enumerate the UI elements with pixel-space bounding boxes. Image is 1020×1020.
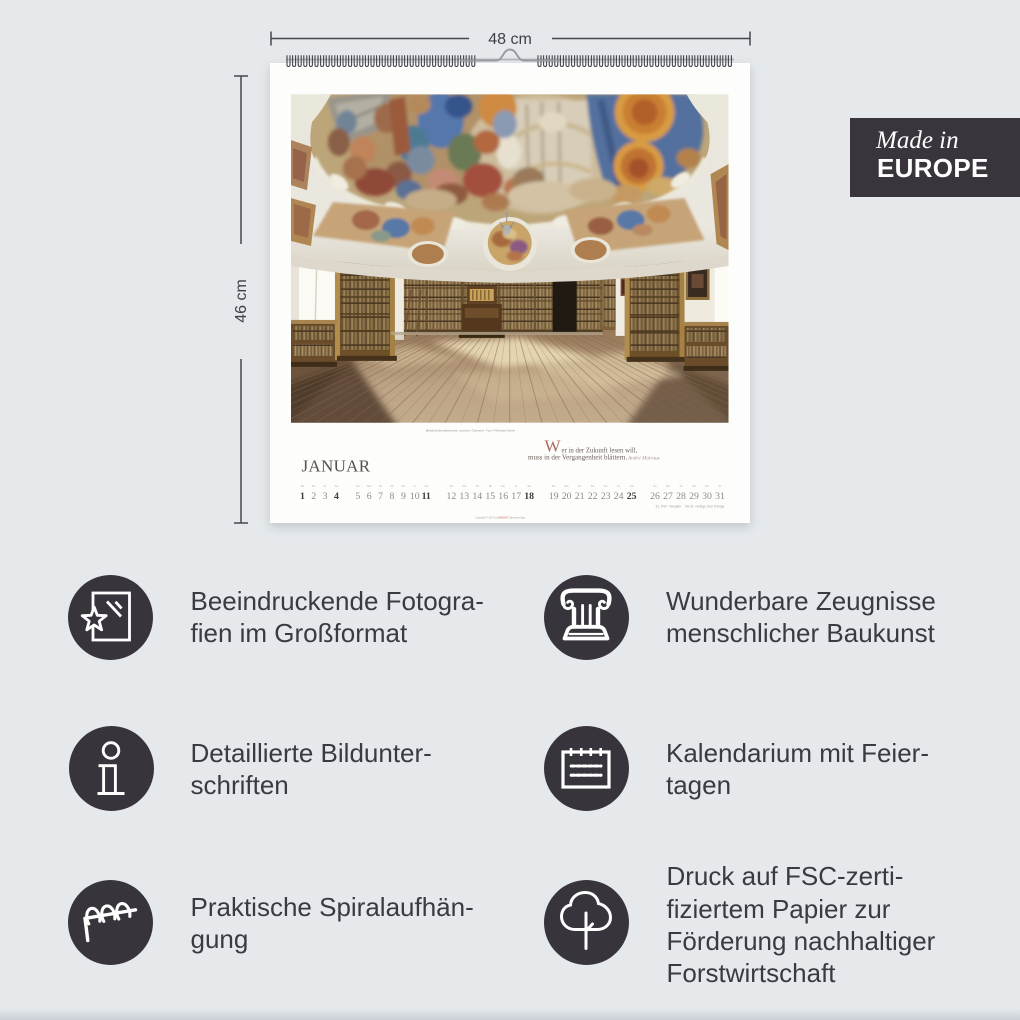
svg-text:13: 13 <box>459 491 469 502</box>
svg-text:21: 21 <box>575 491 585 502</box>
svg-text:1: 1 <box>300 491 305 502</box>
svg-text:JANUAR: JANUAR <box>302 457 371 476</box>
svg-text:4: 4 <box>334 491 339 502</box>
svg-text:26: 26 <box>650 491 660 502</box>
svg-text:16: 16 <box>498 491 508 502</box>
svg-text:Mo: Mo <box>367 484 371 488</box>
svg-text:So: So <box>356 484 360 488</box>
svg-text:3: 3 <box>323 491 328 502</box>
svg-text:31: 31 <box>715 491 725 502</box>
svg-text:10: 10 <box>410 491 420 502</box>
svg-text:André Malraux: André Malraux <box>627 456 661 462</box>
svg-text:Fr: Fr <box>617 484 620 488</box>
svg-text:27: 27 <box>663 491 673 502</box>
svg-text:Copyright © 2024 by DUMONT Kal: Copyright © 2024 by DUMONT Kalenderverla… <box>475 517 525 520</box>
svg-text:28: 28 <box>676 491 686 502</box>
svg-text:Mi: Mi <box>692 484 695 488</box>
svg-text:31. KW · Neujahr 06.01. Hei: 31. KW · Neujahr 06.01. Heilige Drei Kön… <box>655 505 724 509</box>
svg-text:25: 25 <box>627 491 637 502</box>
svg-text:Di: Di <box>680 484 683 488</box>
svg-text:muss in der Vergangenheit blät: muss in der Vergangenheit blättern. <box>528 454 627 462</box>
svg-text:15: 15 <box>485 491 495 502</box>
svg-text:Mi: Mi <box>591 484 594 488</box>
svg-text:2: 2 <box>311 491 316 502</box>
svg-text:Mi: Mi <box>301 484 304 488</box>
svg-text:So: So <box>450 484 454 488</box>
svg-text:Fr: Fr <box>515 484 518 488</box>
svg-text:Fr: Fr <box>719 484 722 488</box>
svg-text:Do: Do <box>705 484 709 488</box>
svg-text:18: 18 <box>524 491 534 502</box>
svg-text:W: W <box>545 436 562 455</box>
svg-text:17: 17 <box>511 491 521 502</box>
svg-text:24: 24 <box>614 491 624 502</box>
svg-text:Sa: Sa <box>335 484 339 488</box>
svg-text:9: 9 <box>401 491 406 502</box>
svg-text:11: 11 <box>422 491 431 502</box>
svg-text:Do: Do <box>312 484 316 488</box>
svg-text:Sa: Sa <box>527 484 531 488</box>
svg-text:23: 23 <box>601 491 611 502</box>
svg-text:Di: Di <box>379 484 382 488</box>
svg-text:Bibliothek Benediktinerstift,: Bibliothek Benediktinerstift, Lambach, Ö… <box>426 429 515 433</box>
svg-text:8: 8 <box>390 491 395 502</box>
svg-text:Mi: Mi <box>489 484 492 488</box>
svg-text:30: 30 <box>702 491 712 502</box>
svg-text:Di: Di <box>476 484 479 488</box>
svg-text:22: 22 <box>588 491 598 502</box>
svg-text:20: 20 <box>562 491 572 502</box>
svg-text:7: 7 <box>378 491 383 502</box>
svg-text:So: So <box>653 484 657 488</box>
svg-text:46 cm: 46 cm <box>233 279 250 323</box>
svg-text:29: 29 <box>689 491 699 502</box>
svg-text:12: 12 <box>447 491 457 502</box>
svg-text:5: 5 <box>355 491 360 502</box>
svg-text:Sa: Sa <box>630 484 634 488</box>
svg-text:Sa: Sa <box>424 484 428 488</box>
svg-text:Mi: Mi <box>390 484 393 488</box>
svg-text:Do: Do <box>604 484 608 488</box>
svg-text:Di: Di <box>578 484 581 488</box>
svg-text:Do: Do <box>401 484 405 488</box>
svg-text:19: 19 <box>549 491 559 502</box>
svg-text:Fr: Fr <box>324 484 327 488</box>
svg-text:Mo: Mo <box>565 484 569 488</box>
svg-text:Do: Do <box>501 484 505 488</box>
svg-text:14: 14 <box>472 491 482 502</box>
svg-text:Mo: Mo <box>666 484 670 488</box>
svg-text:Mo: Mo <box>462 484 466 488</box>
svg-text:Fr: Fr <box>413 484 416 488</box>
svg-text:So: So <box>552 484 556 488</box>
svg-text:6: 6 <box>367 491 372 502</box>
